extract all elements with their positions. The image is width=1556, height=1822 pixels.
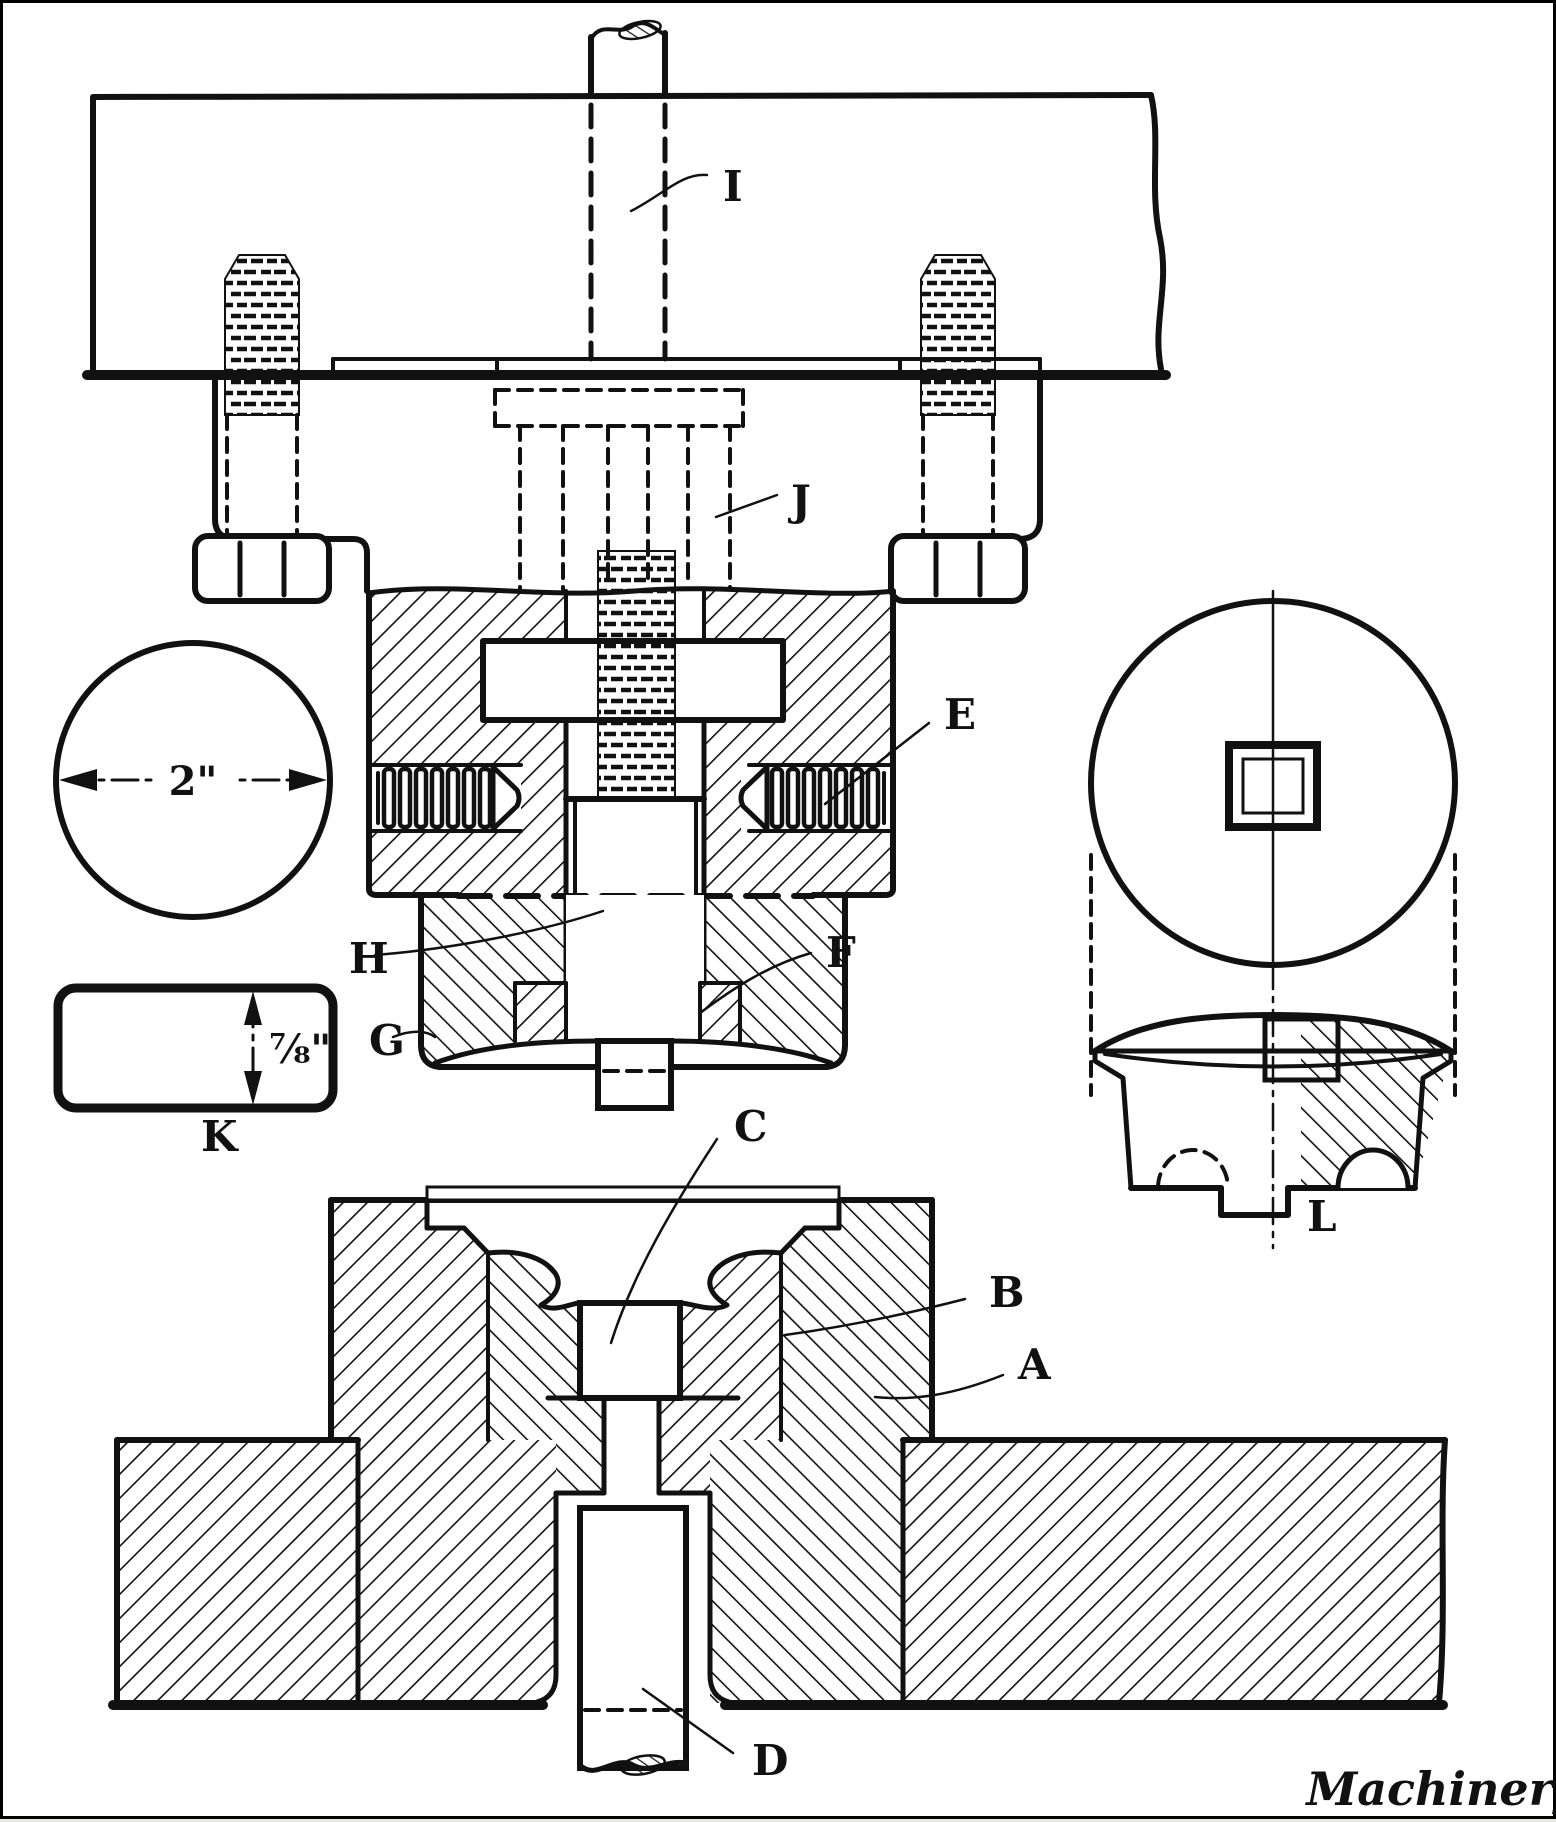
part-label-F: F <box>826 928 856 977</box>
part-label-G: G <box>369 1016 405 1065</box>
part-label-J: J <box>787 476 811 525</box>
engraved-diagram-page: 2" ⅞" <box>0 0 1556 1819</box>
dim-seven-eighths: ⅞" <box>269 1026 331 1073</box>
dim-2in: 2" <box>169 758 218 805</box>
blank-top-view-2in: 2" <box>56 643 330 917</box>
driving-shaft <box>591 18 665 359</box>
part-label-B: B <box>989 1268 1025 1317</box>
part-label-C: C <box>734 1102 767 1151</box>
part-label-K: K <box>201 1112 239 1161</box>
part-label-H: H <box>349 934 389 983</box>
knockout-rod-D <box>580 1508 686 1778</box>
bolt-right <box>891 255 1025 601</box>
part-label-I: I <box>723 162 743 211</box>
part-label-D: D <box>752 1736 788 1785</box>
part-label-A: A <box>1017 1340 1052 1389</box>
part-label-E: E <box>944 690 976 739</box>
blank-in-die <box>580 1303 680 1398</box>
punch-tip <box>598 1041 671 1108</box>
machinery-signature: Machinery <box>1304 1762 1556 1816</box>
blank-side-view-K: ⅞" <box>58 988 333 1108</box>
part-label-L: L <box>1307 1192 1337 1241</box>
punch-and-die-cross-section-drawing: 2" ⅞" <box>3 3 1556 1822</box>
punch-stem-threaded-stud <box>598 551 675 799</box>
